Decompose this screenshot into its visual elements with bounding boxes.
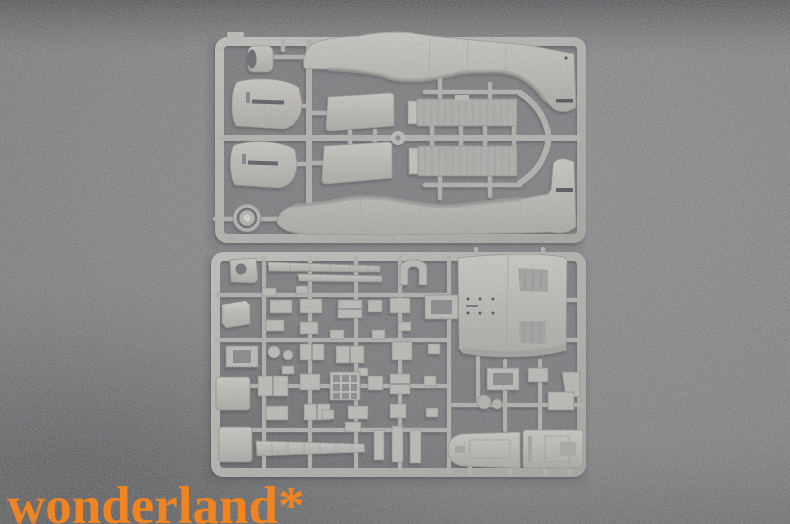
svg-text:wonderland*: wonderland* — [7, 477, 304, 524]
